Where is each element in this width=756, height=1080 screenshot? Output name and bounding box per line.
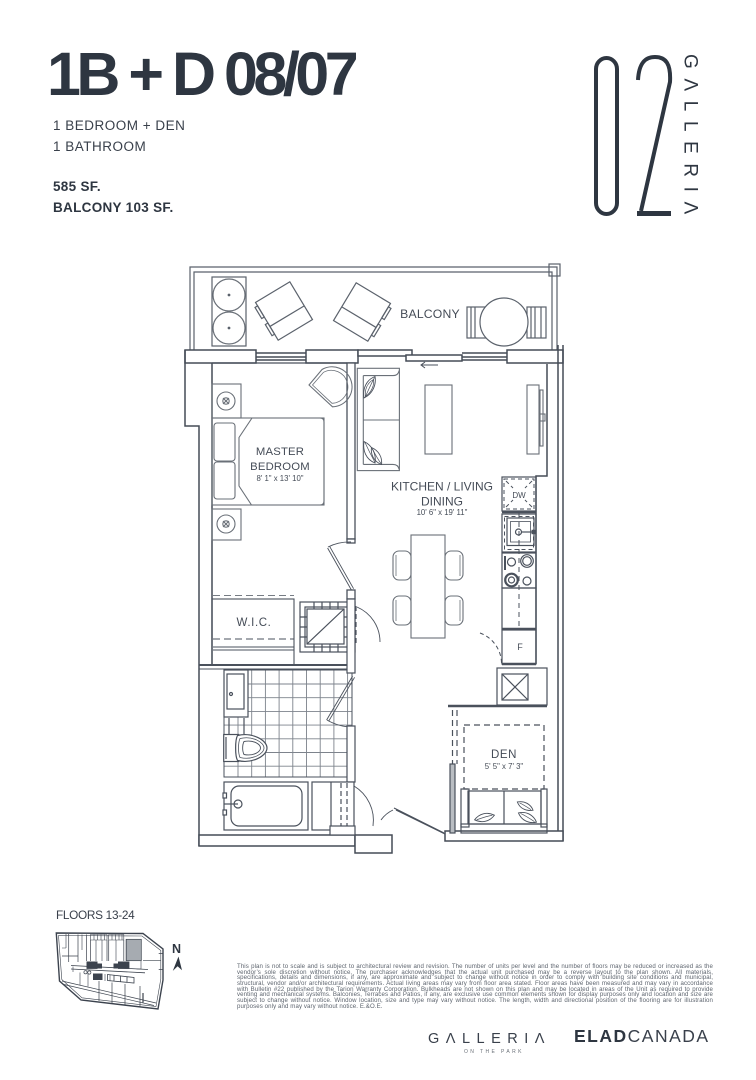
svg-text:ON THE PARK: ON THE PARK [464,1049,524,1055]
svg-text:10' 6" x 19' 11": 10' 6" x 19' 11" [417,508,468,517]
svg-text:BEDROOM: BEDROOM [250,461,310,473]
svg-text:N: N [172,942,181,956]
svg-text:DW: DW [512,491,526,500]
svg-text:MASTER: MASTER [256,446,304,458]
svg-text:DEN: DEN [491,749,517,761]
svg-text:KITCHEN / LIVING: KITCHEN / LIVING [391,480,493,494]
svg-text:DINING: DINING [421,495,463,509]
svg-text:GΛLLERIΛ: GΛLLERIΛ [428,1031,551,1047]
svg-text:8' 1" x 13' 10": 8' 1" x 13' 10" [256,474,303,483]
svg-text:W.I.C.: W.I.C. [237,617,272,629]
svg-text:GΛLLERIΛ: GΛLLERIΛ [680,54,701,224]
svg-text:BALCONY: BALCONY [400,307,460,321]
svg-text:5' 5" x 7' 3": 5' 5" x 7' 3" [485,762,524,771]
svg-text:ELADCANADA: ELADCANADA [574,1026,710,1046]
svg-text:F: F [517,642,523,652]
